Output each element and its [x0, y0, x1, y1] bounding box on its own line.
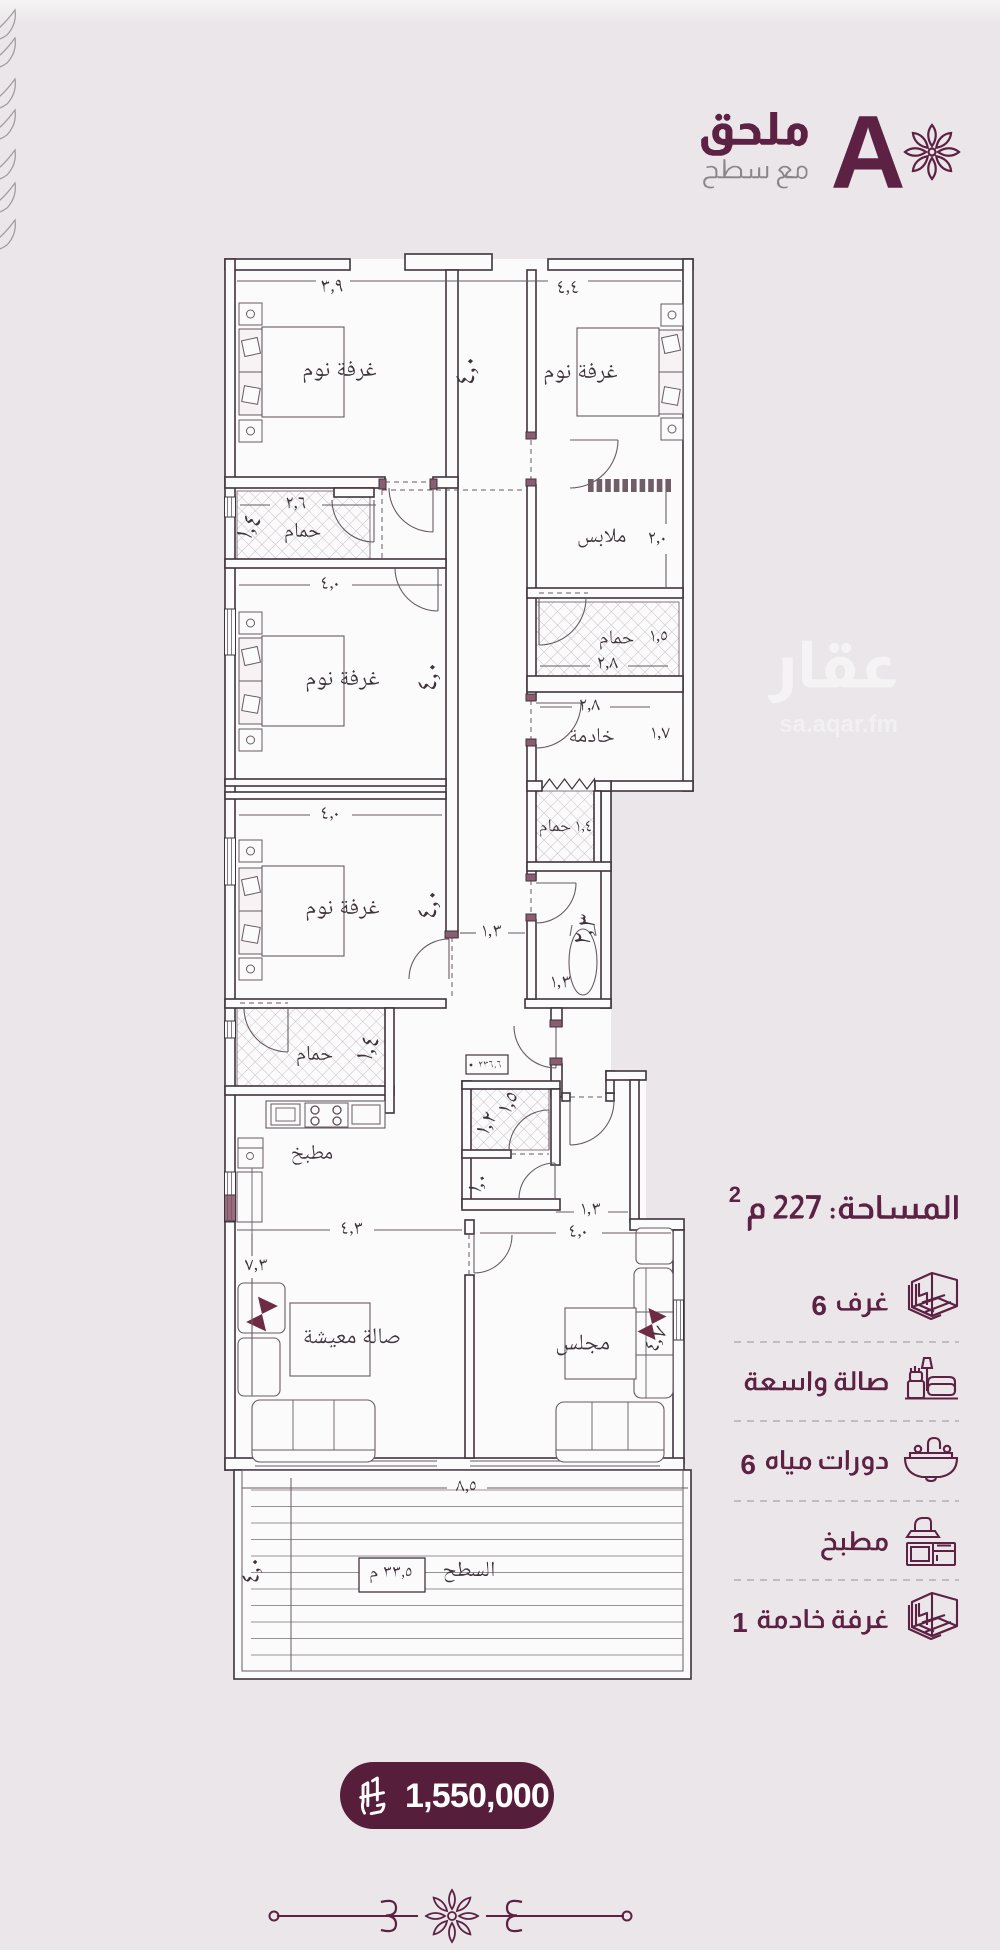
svg-text:A: A	[830, 95, 905, 211]
svg-text:6: 6	[740, 1449, 756, 1480]
svg-text:1: 1	[732, 1607, 748, 1638]
svg-text:sa.aqar.fm: sa.aqar.fm	[779, 711, 898, 738]
svg-text:2: 2	[729, 1182, 741, 1207]
svg-text:1,550,000: 1,550,000	[405, 1777, 549, 1815]
svg-text:6: 6	[811, 1290, 827, 1321]
